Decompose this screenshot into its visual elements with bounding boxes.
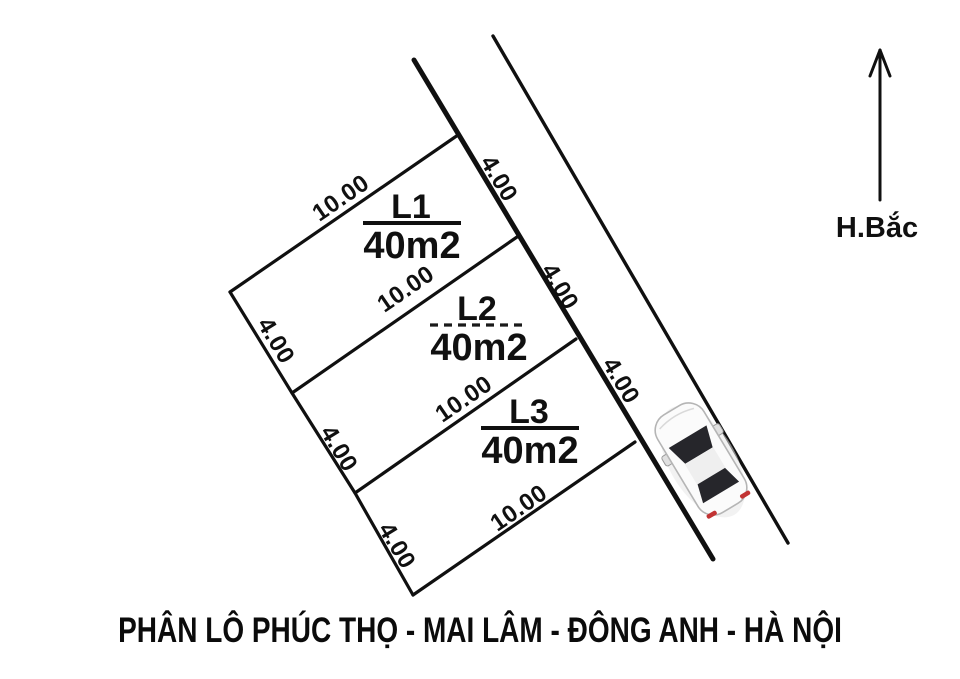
land-plot-diagram: 10.00 10.00 10.00 10.00 4.00 4.00 4.00 4… bbox=[0, 0, 960, 679]
dim-depth-l2-road-text: 4.00 bbox=[536, 259, 584, 315]
dim-width-l1: 10.00 bbox=[307, 169, 374, 227]
north-label-text: H.Bắc bbox=[836, 210, 918, 244]
plot-l1-id-text: L1 bbox=[391, 188, 431, 226]
dim-width-l2-text: 10.00 bbox=[372, 260, 439, 318]
plot-l3-id-text: L3 bbox=[509, 393, 549, 431]
plot-l1-area-text: 40m2 bbox=[363, 225, 460, 267]
dim-depth-l1-road: 4.00 bbox=[475, 151, 523, 207]
dim-width-l3: 10.00 bbox=[430, 370, 497, 428]
plot-l2-label: L2 40m2 bbox=[430, 290, 528, 369]
dim-width-l3-bottom-text: 10.00 bbox=[485, 479, 552, 537]
dim-depth-l3-left-text: 4.00 bbox=[373, 518, 421, 574]
plot-l3-label: L3 40m2 bbox=[481, 393, 579, 472]
dim-depth-l2-left-text: 4.00 bbox=[315, 421, 363, 477]
dim-depth-l1-road-text: 4.00 bbox=[475, 151, 523, 207]
dim-width-l2: 10.00 bbox=[372, 260, 439, 318]
plot-l3-area-text: 40m2 bbox=[481, 430, 578, 472]
dim-width-l1-text: 10.00 bbox=[307, 169, 374, 227]
plot-l2-id-text: L2 bbox=[457, 290, 497, 328]
dim-depth-l2-road: 4.00 bbox=[536, 259, 584, 315]
plot-l2-area-text: 40m2 bbox=[430, 327, 527, 369]
plot-l1-label: L1 40m2 bbox=[363, 188, 461, 267]
north-compass: H.Bắc bbox=[836, 50, 918, 244]
dim-width-l3-text: 10.00 bbox=[430, 370, 497, 428]
diagram-canvas: 10.00 10.00 10.00 10.00 4.00 4.00 4.00 4… bbox=[0, 0, 960, 679]
car-top-view bbox=[642, 391, 763, 532]
dim-depth-l3-left: 4.00 bbox=[373, 518, 421, 574]
dim-depth-l2-left: 4.00 bbox=[315, 421, 363, 477]
dim-width-l3-bottom: 10.00 bbox=[485, 479, 552, 537]
diagram-title: PHÂN LÔ PHÚC THỌ - MAI LÂM - ĐÔNG ANH - … bbox=[118, 611, 842, 651]
